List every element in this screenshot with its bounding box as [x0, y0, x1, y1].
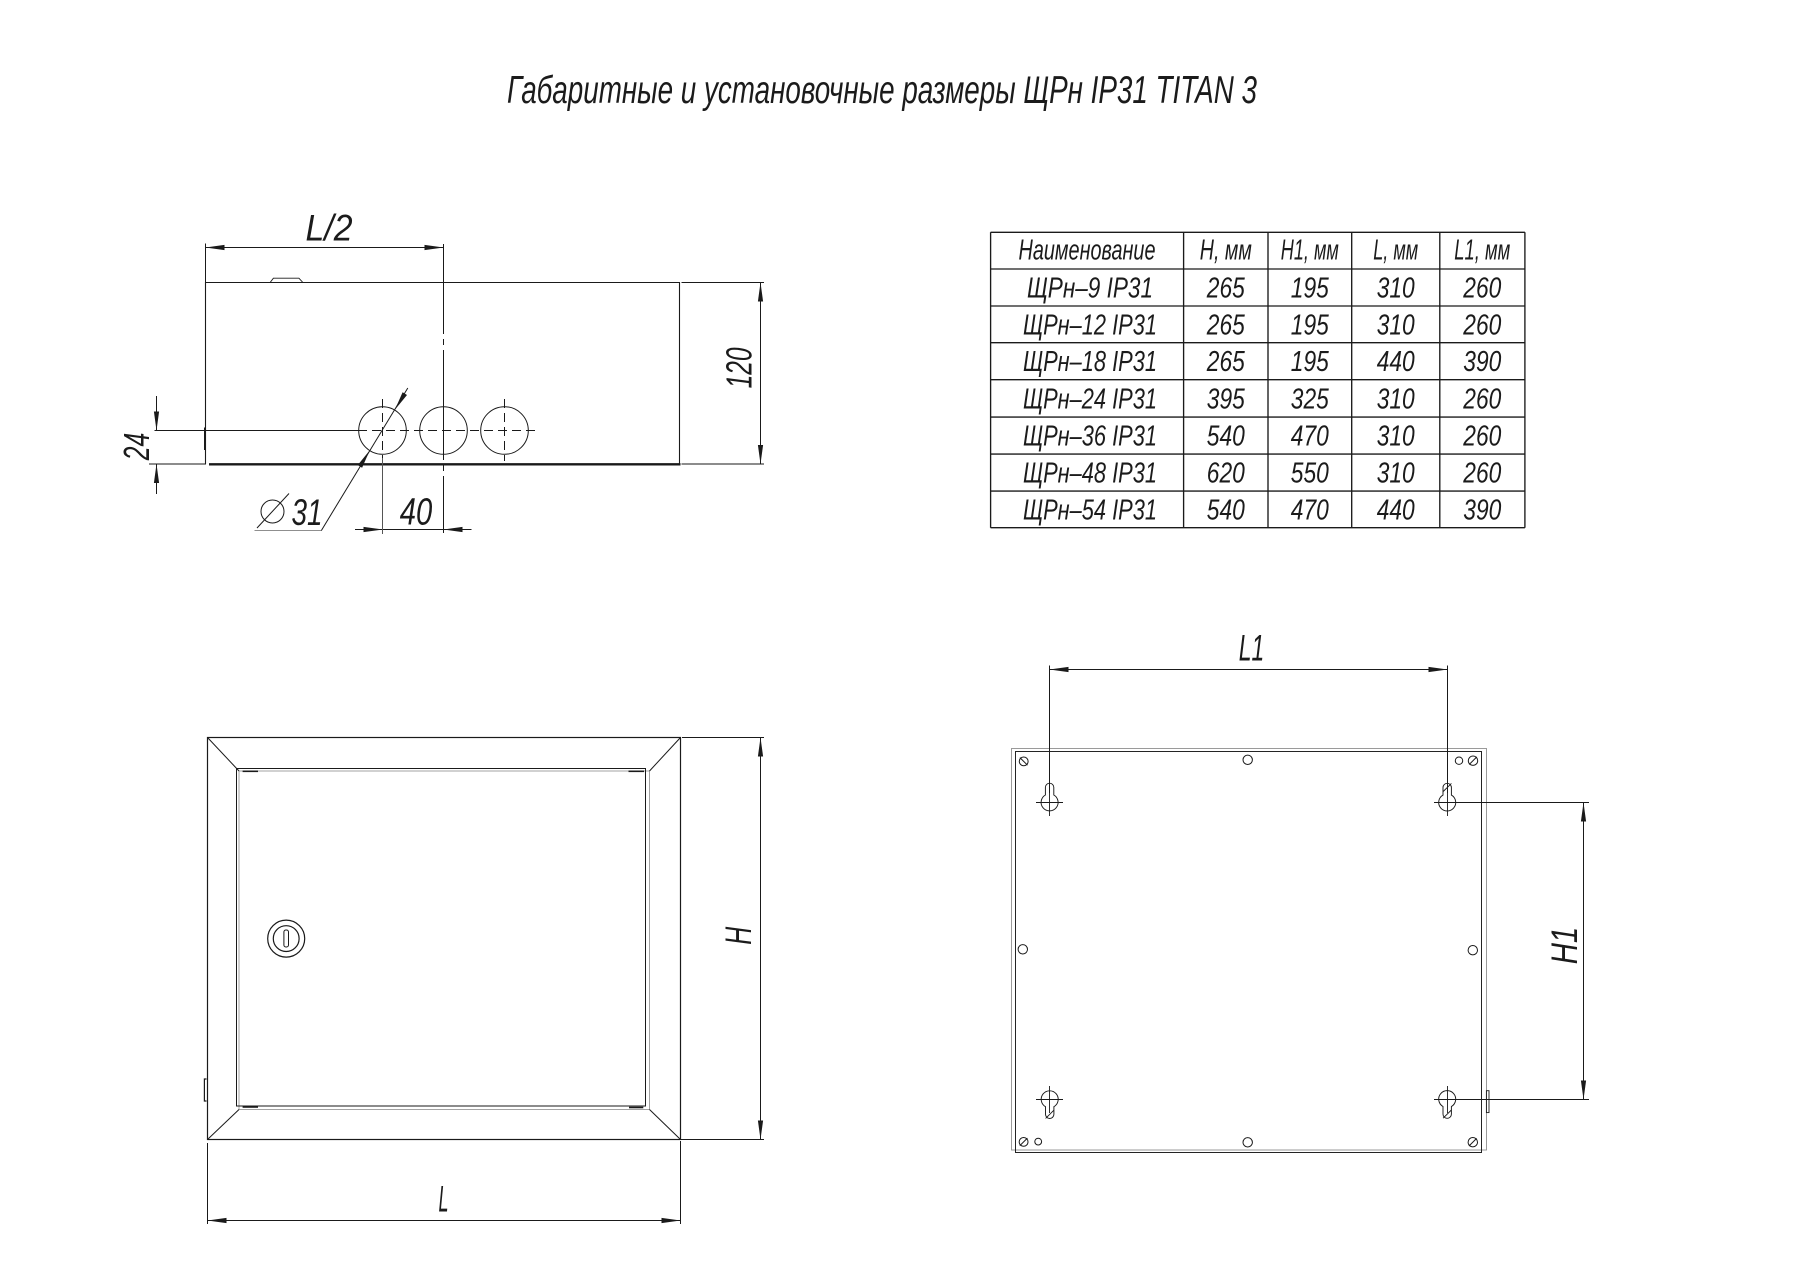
svg-text:H1, мм: H1, мм	[1281, 234, 1339, 266]
svg-text:265: 265	[1206, 272, 1245, 304]
svg-text:120: 120	[719, 347, 760, 388]
svg-text:Габаритные и установочные разм: Габаритные и установочные размеры ЩРн IP…	[507, 69, 1257, 112]
svg-text:Наименование: Наименование	[1019, 234, 1156, 266]
svg-text:31: 31	[292, 492, 323, 533]
svg-text:260: 260	[1463, 272, 1502, 304]
svg-text:440: 440	[1377, 346, 1415, 378]
svg-text:195: 195	[1291, 309, 1330, 341]
svg-text:265: 265	[1206, 346, 1245, 378]
svg-text:195: 195	[1291, 272, 1330, 304]
svg-text:620: 620	[1207, 458, 1245, 490]
svg-text:310: 310	[1377, 458, 1415, 490]
svg-text:L, мм: L, мм	[1373, 234, 1418, 266]
svg-text:540: 540	[1207, 421, 1245, 453]
svg-text:310: 310	[1377, 272, 1415, 304]
svg-text:395: 395	[1207, 383, 1246, 415]
svg-text:24: 24	[116, 433, 157, 461]
svg-text:540: 540	[1207, 494, 1245, 526]
svg-text:470: 470	[1291, 494, 1329, 526]
svg-text:L1: L1	[1239, 628, 1265, 669]
svg-text:H1: H1	[1544, 927, 1585, 965]
svg-text:390: 390	[1463, 346, 1501, 378]
svg-text:195: 195	[1291, 346, 1330, 378]
svg-text:H, мм: H, мм	[1200, 234, 1252, 266]
svg-text:L/2: L/2	[306, 208, 353, 249]
svg-text:ЩРн–18 IP31: ЩРн–18 IP31	[1023, 346, 1157, 378]
svg-text:40: 40	[400, 492, 433, 534]
svg-text:260: 260	[1463, 421, 1502, 453]
svg-text:ЩРн–12 IP31: ЩРн–12 IP31	[1023, 309, 1157, 341]
svg-text:L: L	[439, 1179, 449, 1220]
svg-text:325: 325	[1291, 383, 1330, 415]
svg-text:ЩРн–9 IP31: ЩРн–9 IP31	[1027, 272, 1153, 304]
svg-text:L1, мм: L1, мм	[1454, 234, 1510, 266]
svg-text:260: 260	[1463, 458, 1502, 490]
svg-text:440: 440	[1377, 494, 1415, 526]
svg-text:310: 310	[1377, 309, 1415, 341]
svg-text:470: 470	[1291, 421, 1329, 453]
svg-text:ЩРн–24 IP31: ЩРн–24 IP31	[1023, 383, 1157, 415]
svg-text:310: 310	[1377, 383, 1415, 415]
svg-text:ЩРн–36 IP31: ЩРн–36 IP31	[1023, 421, 1157, 453]
svg-text:310: 310	[1377, 421, 1415, 453]
svg-text:550: 550	[1291, 458, 1329, 490]
svg-text:H: H	[718, 927, 759, 945]
svg-text:ЩРн–48 IP31: ЩРн–48 IP31	[1023, 458, 1157, 490]
svg-text:390: 390	[1463, 494, 1501, 526]
svg-text:260: 260	[1463, 309, 1502, 341]
svg-text:ЩРн–54 IP31: ЩРн–54 IP31	[1023, 494, 1157, 526]
svg-text:265: 265	[1206, 309, 1245, 341]
svg-text:260: 260	[1463, 383, 1502, 415]
